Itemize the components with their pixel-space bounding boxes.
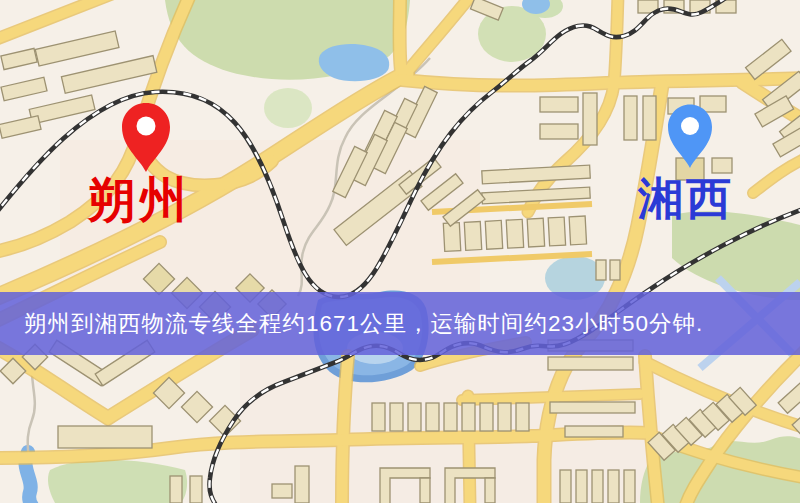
route-info-banner: 朔州到湘西物流专线全程约1671公里，运输时间约23小时50分钟. [0, 292, 800, 355]
destination-pin-hole [681, 117, 699, 135]
origin-city-label: 朔州 [88, 176, 190, 224]
destination-pin-icon[interactable] [666, 102, 714, 172]
route-map: 朔州 湘西 朔州到湘西物流专线全程约1671公里，运输时间约23小时50分钟. [0, 0, 800, 503]
map-background [0, 0, 800, 503]
origin-pin-hole [137, 117, 156, 136]
origin-pin-icon[interactable] [120, 100, 172, 176]
destination-city-label: 湘西 [638, 177, 734, 222]
route-info-text: 朔州到湘西物流专线全程约1671公里，运输时间约23小时50分钟. [0, 308, 703, 339]
